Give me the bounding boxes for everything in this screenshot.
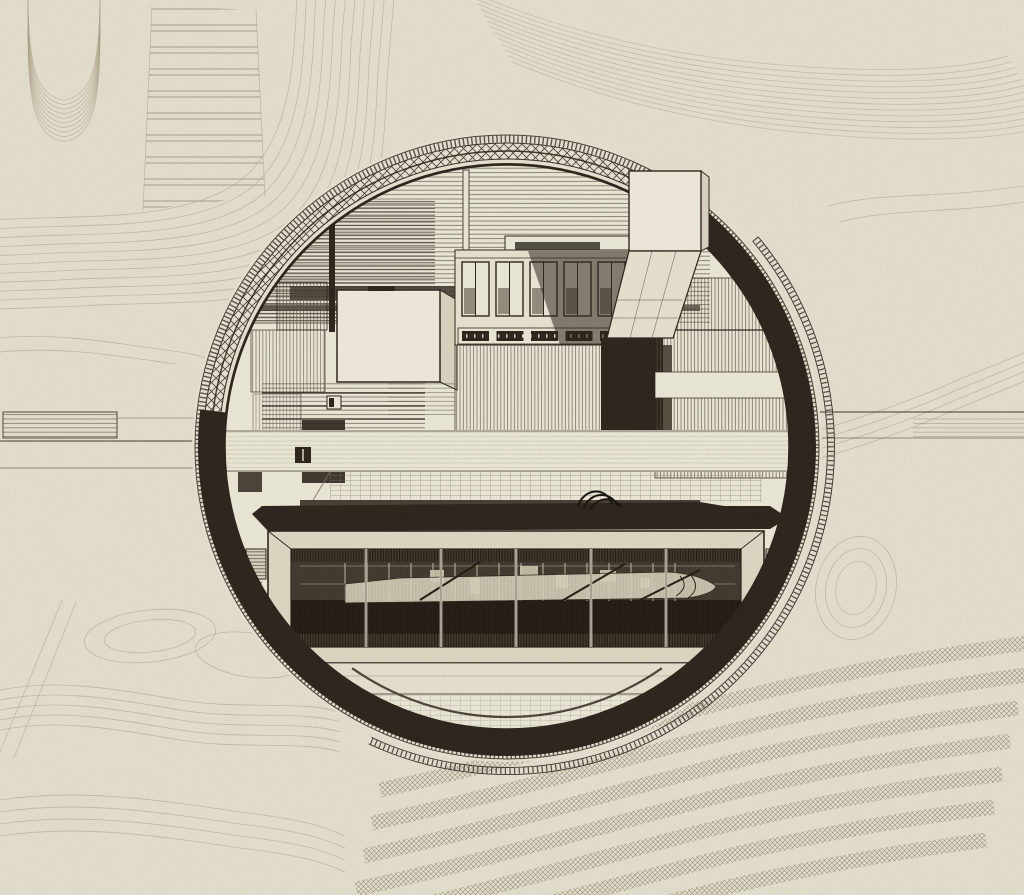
architectural-drawing-canvas xyxy=(0,0,1024,895)
section-drawing xyxy=(0,0,1024,895)
paper-grain-overlay xyxy=(0,0,1024,895)
